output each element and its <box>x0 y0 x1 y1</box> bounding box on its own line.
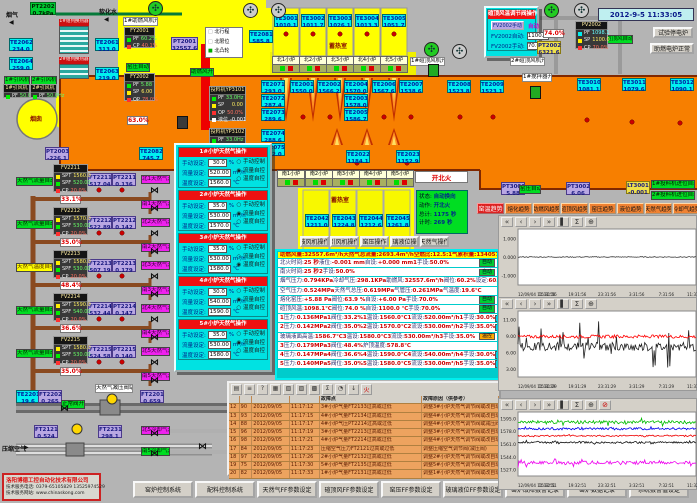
svg-text:11:31:29: 11:31:29 <box>687 384 697 389</box>
valve-icon[interactable]: ⋈ <box>150 205 160 214</box>
manual-set-field[interactable]: 35.0 <box>208 331 227 339</box>
radio-手动控制[interactable]: ○ 手动控制 <box>236 287 265 296</box>
status-chip <box>56 318 60 322</box>
pid-faceplate-1#引风机[interactable]: 1#引风机PF50.0Hz <box>3 84 30 98</box>
alarm-row[interactable]: 13932012/09/0511:17:154#小炉气量FT2134过高或过低调… <box>229 413 499 421</box>
status-chip <box>56 268 60 272</box>
port-北3小炉: 北3小炉 <box>327 56 353 73</box>
sensor-tag: TE3004 <box>356 16 378 23</box>
svg-text:7:32:51: 7:32:51 <box>659 483 675 488</box>
port-label: 北4小炉 <box>353 56 381 65</box>
valve-icon[interactable]: ⋈ <box>150 291 160 300</box>
sensor-tag: TE2201 <box>17 392 39 399</box>
status-chip <box>127 38 131 42</box>
sensor-value: 219.0 <box>96 76 118 83</box>
sensor-box-TE2072: TE2072287.4 <box>261 94 285 107</box>
sensor-value: 532.44 <box>89 311 111 318</box>
red-indicator <box>293 180 298 185</box>
sensor-tag: TE3002 <box>302 16 324 23</box>
chart-tool-icon[interactable]: › <box>529 400 541 410</box>
chart-plot: 1595.01578.01561.01544.01527.012/09/04 1… <box>499 411 697 491</box>
sensor-tag: TE2062 <box>10 40 32 47</box>
sensor-box-TE2044: TE20441212.6 <box>359 214 383 227</box>
flow-set-field[interactable]: 530.00 <box>208 255 231 263</box>
sensor-box-TE3005: TE30051051.7 <box>382 14 406 27</box>
green-indicator <box>361 66 366 71</box>
svg-text:19:32:51: 19:32:51 <box>568 483 586 488</box>
alarm-row[interactable]: 12902012/09/0511:17:123#小炉气量FT2133过高或过低调… <box>229 404 499 412</box>
status-chip <box>56 175 60 179</box>
alarm-tool-icon[interactable]: ▤ <box>231 384 242 395</box>
svg-text:1578.0: 1578.0 <box>500 430 516 436</box>
alarm-row[interactable]: 16982012/09/0511:17:214#小炉气量FT2214过高或过低调… <box>229 437 499 445</box>
sensor-tag: FT2231 <box>99 427 121 434</box>
sensor-box-PT2213: PT22130.179 <box>112 259 136 272</box>
radio-流量自控[interactable]: ◉ 流量自控 <box>236 296 265 305</box>
sensor-value: 1523.1 <box>481 89 503 96</box>
burner-section-title: 1#小炉天然气操作 <box>179 148 267 157</box>
text-烟囱: 烟囱 <box>30 114 42 123</box>
pid-faceplate-投料机YP3101[interactable]: 投料机YP3101PF33.0HzSP0.00OP50.0%液位-0.001 <box>209 86 246 121</box>
sensor-tag: TE2073 <box>262 110 284 117</box>
sensor-tag: TE2005 <box>345 110 367 117</box>
chart-tool-icon[interactable]: « <box>501 299 513 309</box>
status-chip <box>127 84 131 88</box>
check-北限位[interactable]: □ 北限位 <box>208 38 242 48</box>
chart-tool-icon[interactable]: ▌ <box>557 299 569 309</box>
process-data-table: 助燃风量:32557.6m³/h 天然气总流量:2693.4m³/h 空燃比:1… <box>275 249 500 380</box>
alarm-row[interactable]: 15962012/09/0511:17:193#小炉气量FT2213过高或过低调… <box>229 429 499 437</box>
radio-流量自控[interactable]: ○ 流量自控 <box>236 253 265 262</box>
status-chip <box>56 189 60 193</box>
valve-position-48.4%: 48.4% <box>60 281 81 290</box>
sensor-tag: TE2064 <box>10 59 32 66</box>
pid-faceplate-FV2212[interactable]: FV2212SPT1570.0SPF530.00CP20.0% <box>53 207 88 235</box>
red-indicator <box>348 180 353 185</box>
sensor-tag: PT2213 <box>113 261 135 268</box>
checkbox-icon: □ <box>208 29 213 35</box>
sensor-box-TE2081: TE2081585.8 <box>249 30 273 43</box>
sensor-value: 517.04 <box>89 182 111 189</box>
manual-set-field[interactable]: 30.0 <box>208 159 227 167</box>
op-button-玻璃液位操作[interactable]: 玻璃液位操作 <box>390 236 419 247</box>
burner-section-title: 5#小炉天然气操作 <box>179 320 267 329</box>
chart-toolbar: «‹›»▌Σ⊕ <box>499 216 696 228</box>
port-南1小炉: 南1小炉 <box>278 170 304 187</box>
sensor-box-LT3001: LT3001-0.001 <box>626 181 650 194</box>
text-▶: ▶ <box>24 444 29 451</box>
port-indicators <box>353 65 381 73</box>
radio-手动控制[interactable]: ○ 手动控制 <box>236 330 265 339</box>
sensor-value: 1184.1 <box>347 159 369 166</box>
sensor-tag: FT2212 <box>89 218 111 225</box>
pid-row: PF50.0Hz <box>31 93 56 100</box>
valve-icon[interactable]: ⋈ <box>198 443 208 452</box>
valve-icon[interactable]: ⋈ <box>150 450 160 459</box>
check-北凸轮[interactable]: ■ 北凸轮 <box>208 47 242 57</box>
chart-tool-icon[interactable]: » <box>543 400 555 410</box>
radio-温度自控[interactable]: ○ 温度自控 <box>236 218 265 227</box>
trend-button-液位趋势[interactable]: 液位趋势 <box>617 203 644 214</box>
bottom-button-碹顶风FF参数设定[interactable]: 碹顶风FF参数设定 <box>319 481 379 498</box>
status-line: 计时: 269 秒 <box>419 219 465 228</box>
port-北1小炉: 北1小炉 <box>273 56 299 73</box>
pid-faceplate-FV2213[interactable]: FV2213SPT1580.0SPF530.00CP20.0% <box>53 250 88 278</box>
sensor-box-TE2073: TE2073289.6 <box>261 108 285 121</box>
pid-faceplate-FY2001[interactable]: FY2001PF60.2%CP40.1% <box>124 27 155 48</box>
sensor-tag: PT2202 <box>31 4 55 11</box>
sensor-tag: TE2003 <box>345 96 367 103</box>
alarm-tool-icon[interactable]: Σ <box>322 384 333 395</box>
chart-tool-icon[interactable]: « <box>501 217 513 227</box>
port-label: 北5小炉 <box>380 56 408 65</box>
status-chip <box>212 111 216 115</box>
radio-手动控制[interactable]: ○ 手动控制 <box>236 158 265 167</box>
svg-text:15:31:29: 15:31:29 <box>539 384 557 389</box>
pid-row: SPF530.00 <box>54 266 87 273</box>
radio-icon: ○ <box>236 159 241 165</box>
valve-icon[interactable]: ⋈ <box>150 273 160 282</box>
sensor-tag: TE2061 <box>96 40 118 47</box>
sensor-value: 1081.1 <box>578 87 600 94</box>
bottom-button-窑炉控制系统[interactable]: 窑炉控制系统 <box>133 481 193 498</box>
sensor-value: 0.265 <box>39 399 61 406</box>
radio-icon: ○ <box>236 348 241 354</box>
top-button-试验停电炉[interactable]: 试验停电炉 <box>653 27 693 38</box>
alarm-tool-icon[interactable]: 火 <box>361 384 372 395</box>
status-chip <box>578 32 582 36</box>
radio-流量自控[interactable]: ◉ 流量自控 <box>236 339 265 348</box>
sensor-box-TE2002: TE20021566.2 <box>317 80 341 93</box>
sensor-box-TE2023: TE20231152.9 <box>396 150 420 163</box>
table-row: 2压力:0.142MPa 2阀位:35.0% 2温设:1570.0℃ 2流设:5… <box>278 323 497 331</box>
status-line: 动作: 开北火 <box>419 202 465 211</box>
red-indicator <box>375 180 380 185</box>
temp-set-field[interactable]: 1560.0 <box>208 179 231 187</box>
chart-tool-icon[interactable]: Σ <box>571 400 583 410</box>
radio-温度自控[interactable]: ◉ 温度自控 <box>236 261 265 270</box>
valve-icon[interactable]: ⋈ <box>150 359 160 368</box>
label-助燃风开: 助燃风开 <box>190 68 214 77</box>
radio-icon: ○ <box>236 245 241 251</box>
svg-text:23:31:29: 23:31:29 <box>598 384 616 389</box>
alarm-row[interactable]: 20822012/09/0511:17:331#小炉气量FT2131过高或过低调… <box>229 470 499 478</box>
label-天然气流量自动: 天然气流量自动 <box>16 177 53 186</box>
svg-text:1544.0: 1544.0 <box>500 455 516 461</box>
pid-row: CP20.0% <box>54 317 87 324</box>
chart-toolbar: «‹›»▌Σ⊕ <box>499 298 696 310</box>
pid-faceplate-2#引风机[interactable]: 2#引风机PF50.0Hz <box>30 84 57 98</box>
trend-button-碹顶风趋势[interactable]: 碹顶风趋势 <box>561 203 588 214</box>
reversal-checklist: □ 北行程□ 北限位■ 北凸轮 <box>205 27 243 58</box>
chart-tool-icon[interactable]: ‹ <box>515 400 527 410</box>
chart-tool-icon[interactable]: › <box>529 217 541 227</box>
trend-button-熔化趋势[interactable]: 熔化趋势 <box>505 203 532 214</box>
pid-faceplate-FV2211[interactable]: FV2211SPT1560.0SPF520.00CP20.0% <box>53 164 88 192</box>
pid-row: SPF530.00 <box>54 223 87 230</box>
bottom-button-玻璃液位FF参数设定[interactable]: 玻璃液位FF参数设定 <box>443 481 503 498</box>
status-chip <box>56 304 60 308</box>
red-indicator <box>402 180 407 185</box>
table-row: 1压力:0.136MPa 1阀位:33.2% 1温设:1560.0℃ 1流设:5… <box>278 314 497 322</box>
radio-流量自控[interactable]: ◉ 流量自控 <box>236 167 265 176</box>
sensor-tag: TE2045 <box>387 216 409 223</box>
sensor-box-TE3002: TE30021011.7 <box>301 14 325 27</box>
status-chip <box>56 347 60 351</box>
sensor-box-PT2002: PT20026321.6 <box>537 41 561 54</box>
burner-gas-control-popup: 1#小炉天然气操作 手动设定:30.0% 流量设定:520.00m³/h 温度设… <box>174 143 272 372</box>
pid-row: SPF530.00 <box>54 352 87 359</box>
checkbox-icon: ■ <box>208 48 213 54</box>
svg-text:11.00: 11.00 <box>503 318 516 324</box>
valve-icon[interactable]: ⋈ <box>60 405 70 414</box>
svg-text:9.00: 9.00 <box>506 334 516 340</box>
chart-tool-icon[interactable]: ⊕ <box>585 299 597 309</box>
valve-icon[interactable]: ⋈ <box>150 187 160 196</box>
chart-plot: 11.009.006.003.0012/09/04 11:31:2915:31:… <box>499 310 697 392</box>
motor-icon <box>428 64 439 77</box>
svg-text:-1.000: -1.000 <box>501 274 516 280</box>
checkbox-icon: □ <box>208 39 213 45</box>
chart-tool-icon[interactable]: ‹ <box>515 299 527 309</box>
chart-tool-icon[interactable]: ▌ <box>557 217 569 227</box>
pid-row: CP20.0% <box>54 188 87 195</box>
sensor-tag: FT2211 <box>89 175 111 182</box>
pid-row: SP6.00 <box>125 89 154 96</box>
valve-icon[interactable]: ⋈ <box>150 248 160 257</box>
sensor-box-TE2071: TE2071293.0 <box>261 80 285 93</box>
sensor-value: 6.06 <box>567 191 589 198</box>
alarm-tool-icon[interactable]: ▦ <box>270 384 281 395</box>
sensor-box-PT2212: PT22120.142 <box>112 216 136 229</box>
bottom-button-配料控制系统[interactable]: 配料控制系统 <box>195 481 255 498</box>
port-南3小炉: 南3小炉 <box>333 170 359 187</box>
sensor-value: 0.147 <box>113 311 135 318</box>
radio-icon: ○ <box>236 331 241 337</box>
heat-exchanger-2#组列换热器: 2#组列换热器 <box>59 57 89 78</box>
port-indicators <box>359 179 387 187</box>
trend-chart-液位趋势: «‹›»▌Σ⊕1.0000.000-1.00012/09/04 11:31:56… <box>498 215 697 299</box>
fv-manual-button[interactable]: FV2002手动 <box>491 21 524 30</box>
port-北4小炉: 北4小炉 <box>354 56 380 73</box>
sensor-box-PT3002: PT30026.06 <box>566 182 590 195</box>
temp-set-field[interactable]: 1580.0 <box>208 265 231 273</box>
chart-tool-icon[interactable]: ⊕ <box>585 400 597 410</box>
alarm-row[interactable]: 14882012/09/0511:17:174#小炉气压PT2214过高或过低调… <box>229 421 499 429</box>
mode-badge: 自动 <box>479 259 495 267</box>
table-row: 空气压力:0.524MPa 天然气总压:0.619MPa 气管压:0.261MP… <box>278 287 497 295</box>
port-indicators <box>386 179 414 187</box>
heat-exchanger-1#组列换热器: 1#组列换热器 <box>59 19 89 53</box>
check-北行程[interactable]: □ 北行程 <box>208 28 242 38</box>
alarm-tool-icon[interactable]: ◔ <box>335 384 346 395</box>
status-chip <box>56 225 60 229</box>
bottom-button-天然气FF参数设定[interactable]: 天然气FF参数设定 <box>257 481 317 498</box>
pid-title: 投料机YP3102 <box>210 129 245 137</box>
manual-set-field[interactable]: 35.0 <box>208 245 227 253</box>
chart-tool-icon[interactable]: » <box>543 299 555 309</box>
pid-faceplate-PV2002[interactable]: PV2002PF1098.1SP1100.0CP70.0% <box>575 21 608 49</box>
alarm-tool-icon[interactable]: ≡ <box>244 384 255 395</box>
trend-button-窑压趋势[interactable]: 窑压趋势 <box>589 203 616 214</box>
sensor-value: 1567.6 <box>373 89 395 96</box>
text-软化水: 软化水 <box>99 7 117 16</box>
sensor-value: 1051.7 <box>383 23 405 30</box>
port-label: 南1小炉 <box>277 170 305 179</box>
sensor-value: 507.19 <box>89 268 111 275</box>
alarm-tool-icon[interactable]: ↓ <box>348 384 359 395</box>
alarm-tool-icon[interactable]: ? <box>257 384 268 395</box>
alarm-row[interactable]: 19752012/09/0511:17:305#小炉气量FT2135过高或过低调… <box>229 462 499 470</box>
sensor-value: 1211.0 <box>306 223 328 230</box>
pid-row: SP1100.0 <box>576 37 607 44</box>
alarm-row[interactable]: 17842012/09/0511:17:23压缩空气压力FT2121过高或过低调… <box>229 446 499 454</box>
label-北1天然气开: 北1天然气开 <box>141 175 170 184</box>
pid-faceplate-FY2002[interactable]: FY2002PF5.88SP6.00OP78.0% <box>124 73 155 101</box>
trend-button-天然气趋势[interactable]: 天然气趋势 <box>645 203 672 214</box>
mode-badge: 自动 <box>479 269 495 277</box>
op-button-鼓风机操作[interactable]: 鼓风机操作 <box>300 236 329 247</box>
burner-section-1: 1#小炉天然气操作 手动设定:30.0% 流量设定:520.00m³/h 温度设… <box>178 147 268 188</box>
text-◀: ◀ <box>104 16 109 23</box>
temp-set-field[interactable]: 1570.0 <box>208 222 231 230</box>
bottom-button-窑压FF参数设定[interactable]: 窑压FF参数设定 <box>381 481 441 498</box>
label-天然气流量自动: 天然气流量自动 <box>16 349 53 358</box>
status-chip <box>56 218 60 222</box>
port-indicators <box>380 65 408 73</box>
radio-icon: ◉ <box>236 211 241 217</box>
fan-icon: ✣ <box>544 3 559 18</box>
sensor-box-TE2008: TE20081523.8 <box>447 80 471 93</box>
alarm-tool-icon[interactable]: ▧ <box>283 384 294 395</box>
sensor-box-TE2201: TE220119.6 <box>16 390 40 403</box>
sensor-box-FT2211: FT2211517.04 <box>88 173 112 186</box>
chart-tool-icon[interactable]: ‹ <box>515 217 527 227</box>
chart-tool-icon[interactable]: Σ <box>571 217 583 227</box>
alarm-row[interactable]: 18972012/09/0511:17:262#小炉气量FT2132过高或过低调… <box>229 454 499 462</box>
pid-title: FV2213 <box>54 251 87 259</box>
sensor-box-TE2042: TE20421211.0 <box>305 214 329 227</box>
status-line: 状态: 自动换向 <box>419 193 465 202</box>
valve-icon[interactable]: ⋈ <box>150 230 160 239</box>
chart-tool-icon[interactable]: ▌ <box>557 400 569 410</box>
table-row: 3压力:0.179MPa 3阀位:48.4% 炉顶温度:578.8℃ <box>278 342 497 350</box>
flow-set-field[interactable]: 530.00 <box>208 341 231 349</box>
op-button-天然气操作[interactable]: 天然气操作 <box>420 236 449 247</box>
sensor-value: 32557.6 <box>172 46 197 53</box>
pid-row: CP20.0% <box>54 231 87 238</box>
mode-badge: 流控 <box>495 324 497 332</box>
radio-流量自控[interactable]: ◉ 流量自控 <box>236 210 265 219</box>
radio-温度自控[interactable]: ○ 温度自控 <box>236 304 265 313</box>
valve-icon[interactable]: ⋈ <box>150 377 160 386</box>
sensor-tag: PT3002 <box>567 184 589 191</box>
radio-温度自控[interactable]: ○ 温度自控 <box>236 175 265 184</box>
sensor-tag: PT2002 <box>538 43 560 50</box>
status-chip <box>33 95 37 99</box>
valve-icon[interactable]: ⋈ <box>150 316 160 325</box>
status-chip <box>6 95 10 99</box>
sensor-box-TE2006: TE20061567.6 <box>372 80 396 93</box>
chart-tool-icon[interactable]: ⊕ <box>585 217 597 227</box>
port-label: 南2小炉 <box>305 170 333 179</box>
op-button-引风机操作[interactable]: 引风机操作 <box>330 236 359 247</box>
radio-icon: ○ <box>236 288 241 294</box>
flow-set-field[interactable]: 540.00 <box>208 298 231 306</box>
trend-button-助燃风趋势[interactable]: 助燃风趋势 <box>533 203 560 214</box>
top-button-助燃电炉正常[interactable]: 助燃电炉正常 <box>650 43 694 54</box>
manual-set-field[interactable]: 35.0 <box>208 202 227 210</box>
sensor-value: 0.7kPa <box>31 11 55 18</box>
valve-icon[interactable]: ⋈ <box>150 430 160 439</box>
sensor-tag: PT2001 <box>172 39 197 46</box>
op-button-窑压操作[interactable]: 窑压操作 <box>360 236 389 247</box>
sensor-tag: PT2214 <box>113 304 135 311</box>
sensor-tag: TE2001 <box>291 82 313 89</box>
chart-tool-icon[interactable]: « <box>501 400 513 410</box>
sensor-box-PT2214: PT22140.147 <box>112 302 136 315</box>
sensor-box-FT2213: FT2213507.19 <box>88 259 112 272</box>
port-indicators <box>299 65 327 73</box>
red-indicator <box>342 66 347 71</box>
svg-text:11:32:51: 11:32:51 <box>687 483 697 488</box>
text-烟气: 烟气 <box>6 10 18 19</box>
chart-tool-icon[interactable]: Σ <box>571 299 583 309</box>
mode-badge: 自动 <box>479 296 495 304</box>
sensor-value: 289.6 <box>262 117 284 124</box>
radio-温度自控[interactable]: ○ 温度自控 <box>236 347 265 356</box>
port-indicators <box>305 179 333 187</box>
status-chip <box>212 97 216 101</box>
sensor-tag: TE2007 <box>400 82 422 89</box>
flow-set-field[interactable]: 530.00 <box>208 212 231 220</box>
sensor-value: 0.659 <box>141 399 163 406</box>
sensor-box-PT2202: PT22020.7kPa <box>30 2 56 15</box>
port-label: 南3小炉 <box>332 170 360 179</box>
reversal-status-box: 状态: 自动换向动作: 开北火总计: 1175 秒计时: 269 秒 <box>416 190 468 234</box>
trend-button-冷却气趋势[interactable]: 冷却气趋势 <box>673 203 697 214</box>
trend-button-窑温趋势[interactable]: 窑温趋势 <box>477 203 504 214</box>
manual-set-field[interactable]: 30.0 <box>208 288 227 296</box>
chart-tool-icon[interactable]: » <box>543 217 555 227</box>
pid-title: FV2212 <box>54 208 87 216</box>
pid-faceplate-FV2215[interactable]: FV2215SPT1580.0SPF530.00CP20.0% <box>53 336 88 364</box>
port-南4小炉: 南4小炉 <box>360 170 386 187</box>
port-indicators <box>326 65 354 73</box>
text-压缩空气: 压缩空气 <box>2 444 26 453</box>
chart-tool-icon[interactable]: ⊘ <box>599 400 611 410</box>
temp-set-field[interactable]: 1580.0 <box>208 351 231 359</box>
sensor-box-PT2001: PT200132557.6 <box>171 37 198 50</box>
flow-set-field[interactable]: 520.00 <box>208 169 231 177</box>
chart-tool-icon[interactable]: › <box>529 299 541 309</box>
sensor-box-FT2214: FT2214532.44 <box>88 302 112 315</box>
temp-set-field[interactable]: 1590.0 <box>208 308 231 316</box>
alarm-tool-icon[interactable]: ▩ <box>309 384 320 395</box>
sensor-box-TE2061: TE2061313.0 <box>95 38 119 51</box>
valve-icon[interactable]: ⋈ <box>150 334 160 343</box>
alarm-tool-icon[interactable]: ▨ <box>296 384 307 395</box>
sensor-tag: TE3005 <box>383 16 405 23</box>
sensor-box-PT2215: PT22150.140 <box>112 345 136 358</box>
radio-手动控制[interactable]: ○ 手动控制 <box>236 244 265 253</box>
sensor-tag: TE3010 <box>578 80 600 87</box>
sensor-value: 522.89 <box>89 225 111 232</box>
green-indicator <box>307 66 312 71</box>
pid-row: SPF520.00 <box>54 180 87 187</box>
pid-faceplate-FV2214[interactable]: FV2214SPT1590.0SPF540.00CP20.0% <box>53 293 88 321</box>
radio-手动控制[interactable]: ○ 手动控制 <box>236 201 265 210</box>
